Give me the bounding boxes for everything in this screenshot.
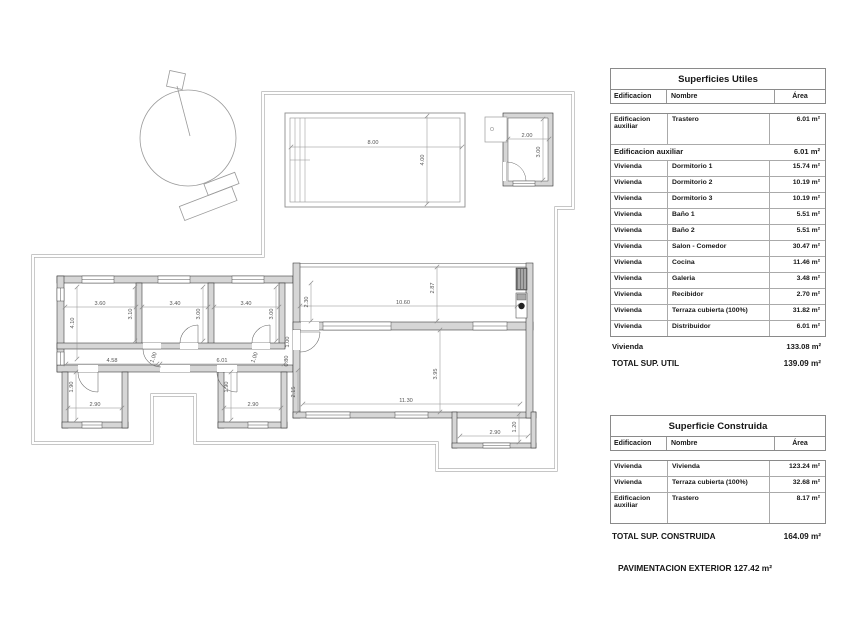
cell-nombre: Baño 1 [668,209,770,224]
cell-nombre: Trastero [668,114,770,144]
cell-nombre: Terraza cubierta (100%) [668,305,770,320]
table-row: Vivienda Terraza cubierta (100%) 32.68 m… [611,477,825,493]
cell-area: 11.46 m² [770,257,825,272]
cell-nombre: Dormitorio 3 [668,193,770,208]
dimension-text: 10.60 [396,300,410,306]
cell-edificacion: Vivienda [611,209,668,224]
table-row: Vivienda Dormitorio 3 10.19 m² [611,193,825,209]
dimension-text: 3.40 [170,301,181,307]
cell-edificacion: Vivienda [611,321,668,336]
column-headers: Edificacion Nombre Área [611,437,825,450]
cell-area: 8.17 m² [770,493,825,523]
table-row: Edificacion auxiliar Trastero 8.17 m² [611,493,825,523]
table-row: Vivienda Galeria 3.48 m² [611,273,825,289]
dimension-text: 1.00 [250,352,259,364]
dimension-text: 3.60 [95,301,106,307]
dimension-text: 0.80 [284,356,290,367]
cell-nombre: Recibidor [668,289,770,304]
dimension-text: 2.90 [248,402,259,408]
cell-edificacion: Vivienda [611,305,668,320]
dimension-text: 6.01 [217,358,228,364]
pavimentacion-exterior-note: PAVIMENTACION EXTERIOR 127.42 m² [618,563,772,573]
cell-area: 6.01 m² [770,321,825,336]
dimension-text: 4.00 [420,155,426,166]
terrace-open-edge [300,264,526,268]
table-row: Vivienda Vivienda 123.24 m² [611,461,825,477]
cell-edificacion: Vivienda [611,193,668,208]
swimming-pool [285,113,465,207]
cell-area: 6.01 m² [770,114,825,144]
col-area: Área [775,437,825,450]
cell-area: 6.01 m² [770,145,825,160]
cell-area: 2.70 m² [770,289,825,304]
cell-nombre: Dormitorio 1 [668,161,770,176]
utiles-header-box: Superficies Utiles Edificacion Nombre Ár… [610,68,826,104]
construida-totals: TOTAL SUP. CONSTRUIDA 164.09 m² [610,527,826,544]
dimension-text: 4.10 [70,318,76,329]
cell-area: 30.47 m² [770,241,825,256]
cell-edificacion: Vivienda [611,161,668,176]
utiles-totals: Vivienda 133.08 m² TOTAL SUP. UTIL 139.0… [610,340,826,371]
col-edificacion: Edificacion [611,437,667,450]
cell-edificacion: Vivienda [611,477,668,492]
total-row: Vivienda 133.08 m² [610,340,826,354]
superficies-utiles-table: Superficies Utiles Edificacion Nombre Ár… [610,68,826,371]
table-row: Edificacion auxiliar Trastero 6.01 m² [611,114,825,145]
dimension-text: 3.00 [269,309,275,320]
dimension-text: 3.00 [196,309,202,320]
cell-nombre: Terraza cubierta (100%) [668,477,770,492]
cell-nombre: Galeria [668,273,770,288]
table-row: Vivienda Salon - Comedor 30.47 m² [611,241,825,257]
total-value: 164.09 m² [784,530,826,544]
cell-area: 5.51 m² [770,225,825,240]
cell-nombre: Cocina [668,257,770,272]
total-value: 139.09 m² [784,357,826,371]
table-row: Vivienda Distribuidor 6.01 m² [611,321,825,336]
column-headers: Edificacion Nombre Área [611,90,825,103]
cell-edificacion: Vivienda [611,241,668,256]
total-value: 133.08 m² [786,340,826,354]
table-row: Vivienda Baño 1 5.51 m² [611,209,825,225]
cell-area: 5.51 m² [770,209,825,224]
table-row: Vivienda Baño 2 5.51 m² [611,225,825,241]
tree-canopy-circle [140,90,236,186]
dimension-text: 2.87 [430,283,436,294]
table-row: Vivienda Cocina 11.46 m² [611,257,825,273]
site-object-large [179,186,237,220]
tree-trunk-box [167,71,186,90]
dimension-text: 1.00 [285,337,291,348]
cell-nombre: Baño 2 [668,225,770,240]
cell-edificacion: Vivienda [611,461,668,476]
dimension-text: 2.90 [90,402,101,408]
total-row: TOTAL SUP. CONSTRUIDA 164.09 m² [610,527,826,544]
total-label: TOTAL SUP. UTIL [610,357,679,371]
utiles-grid: Edificacion auxiliar Trastero 6.01 m² Ed… [610,113,826,337]
house [57,263,536,448]
cell-area: 10.19 m² [770,177,825,192]
table-row: Vivienda Terraza cubierta (100%) 31.82 m… [611,305,825,321]
cell-nombre: Trastero [668,493,770,523]
col-edificacion: Edificacion [611,90,667,103]
dimension-text: 1.20 [512,422,518,433]
table-row: Vivienda Dormitorio 1 15.74 m² [611,161,825,177]
dimension-text: 3.10 [128,309,134,320]
col-nombre: Nombre [667,437,775,450]
dimension-text: 3.40 [241,301,252,307]
table-row: Vivienda Recibidor 2.70 m² [611,289,825,305]
table-title: Superficie Construida [611,416,825,437]
cell-edificacion: Vivienda [611,177,668,192]
total-row: TOTAL SUP. UTIL 139.09 m² [610,354,826,371]
dimension-text: 2.15 [291,387,297,398]
dimension-text: 2.30 [304,297,310,308]
cell-area: 3.48 m² [770,273,825,288]
house-walls [57,263,536,448]
cell-area: 15.74 m² [770,161,825,176]
construida-grid: Vivienda Vivienda 123.24 m² Vivienda Ter… [610,460,826,524]
kitchen-fixtures [516,268,527,318]
dimension-text: 11.30 [399,398,413,404]
dimension-text: 2.90 [490,430,501,436]
cell-area: 31.82 m² [770,305,825,320]
table-row: Edificacion auxiliar 6.01 m² [611,145,825,161]
dimension-text: 2.00 [522,133,533,139]
floor-plan-sheet: 8.004.002.003.003.603.403.404.103.103.00… [0,0,851,625]
cell-nombre: Salon - Comedor [668,241,770,256]
dimension-text: 3.00 [536,147,542,158]
construida-header-box: Superficie Construida Edificacion Nombre… [610,415,826,451]
cell-edificacion: Edificacion auxiliar [611,145,770,160]
cell-area: 32.68 m² [770,477,825,492]
col-area: Área [775,90,825,103]
cell-edificacion: Vivienda [611,273,668,288]
superficie-construida-table: Superficie Construida Edificacion Nombre… [610,415,826,544]
col-nombre: Nombre [667,90,775,103]
dimension-text: 4.58 [107,358,118,364]
table-title: Superficies Utiles [611,69,825,90]
dimension-text: 1.90 [224,382,230,393]
sink-basin [518,303,524,309]
dimension-text: 1.00 [149,352,158,364]
dimension-text: 1.90 [69,382,75,393]
cell-nombre: Distribuidor [668,321,770,336]
tree-stem-line [177,86,190,136]
cell-nombre: Dormitorio 2 [668,177,770,192]
dimension-text: 8.00 [368,140,379,146]
table-row: Vivienda Dormitorio 2 10.19 m² [611,177,825,193]
total-label: TOTAL SUP. CONSTRUIDA [610,530,716,544]
cell-edificacion: Vivienda [611,257,668,272]
tree [140,71,239,221]
cell-edificacion: Vivienda [611,289,668,304]
dimension-text: 3.95 [433,369,439,380]
cell-edificacion: Edificacion auxiliar [611,493,668,523]
cell-area: 10.19 m² [770,193,825,208]
total-label: Vivienda [610,340,643,354]
cell-area: 123.24 m² [770,461,825,476]
utility-box [485,117,507,142]
cell-nombre: Vivienda [668,461,770,476]
cell-edificacion: Edificacion auxiliar [611,114,668,144]
cell-edificacion: Vivienda [611,225,668,240]
